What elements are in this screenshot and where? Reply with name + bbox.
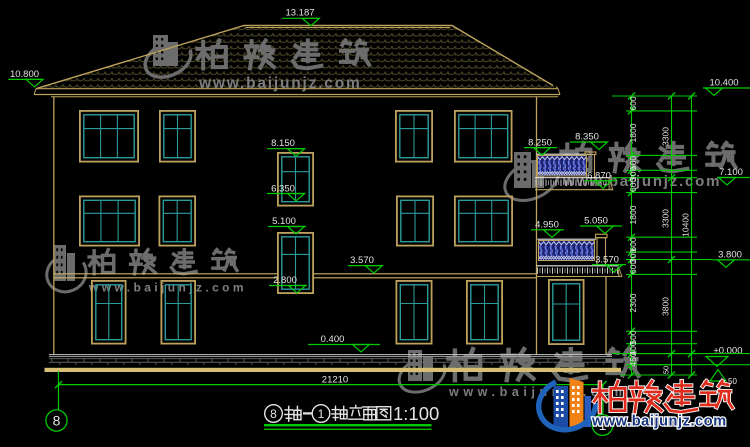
svg-text:6.870: 6.870 [587, 171, 611, 182]
svg-text:2.800: 2.800 [273, 275, 297, 286]
svg-text:5.100: 5.100 [272, 216, 296, 227]
svg-text:8: 8 [53, 413, 61, 429]
svg-text:3300: 3300 [661, 209, 671, 228]
svg-text:3800: 3800 [661, 297, 671, 316]
svg-text:1:100: 1:100 [393, 403, 439, 424]
svg-text:1800: 1800 [628, 205, 638, 224]
svg-text:600: 600 [628, 178, 638, 192]
svg-text:50: 50 [662, 366, 671, 374]
svg-text:7.100: 7.100 [719, 167, 743, 178]
svg-text:www.baijunjz.com: www.baijunjz.com [591, 414, 727, 430]
svg-text:450: 450 [628, 352, 638, 366]
svg-text:4.950: 4.950 [535, 220, 559, 231]
svg-text:21210: 21210 [322, 375, 348, 386]
svg-text:10400: 10400 [681, 213, 691, 237]
svg-text:3.800: 3.800 [718, 250, 742, 261]
svg-text:8.250: 8.250 [528, 137, 552, 148]
svg-text:8.350: 8.350 [575, 132, 599, 143]
svg-text:1800: 1800 [628, 123, 638, 142]
svg-text:3.570: 3.570 [595, 254, 619, 265]
svg-text:10.800: 10.800 [10, 69, 39, 80]
svg-text:3300: 3300 [661, 127, 671, 146]
svg-text:10.400: 10.400 [709, 78, 738, 89]
svg-text:5.050: 5.050 [584, 216, 608, 227]
svg-text:0.400: 0.400 [321, 334, 345, 345]
svg-text:2300: 2300 [628, 293, 638, 312]
svg-text:8: 8 [270, 407, 277, 421]
svg-text:www.baijunjz.com: www.baijunjz.com [198, 75, 362, 92]
svg-text:www.baijunjz.com: www.baijunjz.com [88, 281, 247, 295]
svg-text:8.150: 8.150 [271, 138, 295, 149]
svg-text:3.570: 3.570 [350, 255, 374, 266]
svg-text:600: 600 [628, 96, 638, 110]
svg-text:±0.000: ±0.000 [714, 346, 743, 357]
svg-text:1: 1 [318, 407, 325, 421]
svg-text:600: 600 [628, 260, 638, 274]
svg-text:13.187: 13.187 [285, 8, 314, 19]
